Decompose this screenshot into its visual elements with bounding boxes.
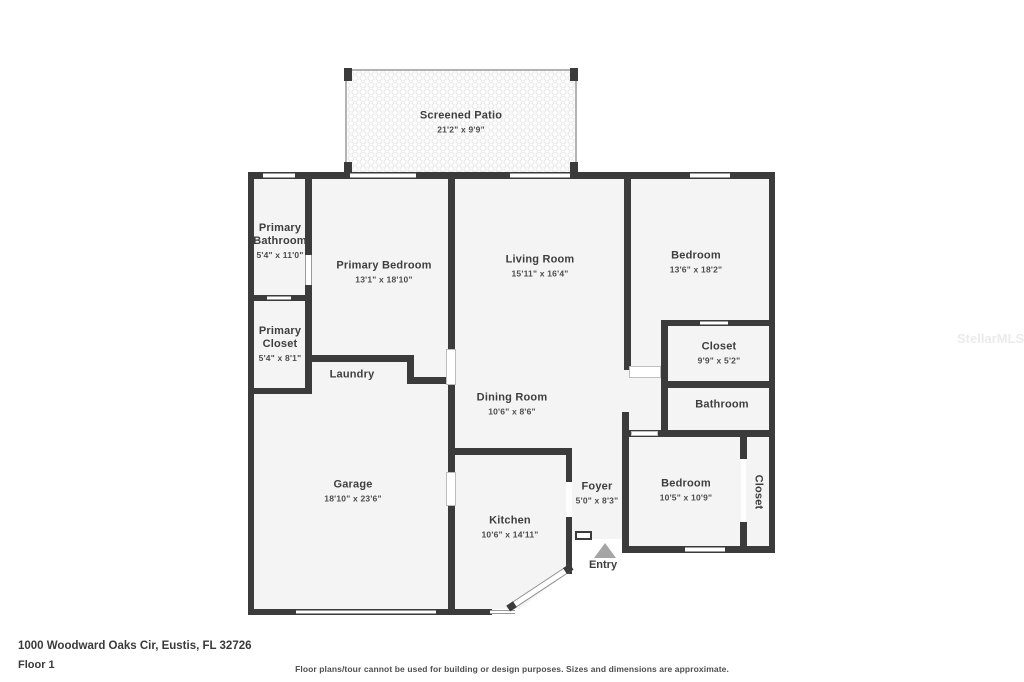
room-dims: 10'6" x 14'11" (482, 529, 539, 539)
patio-sliding-door (350, 173, 416, 178)
room-label-bedroom-lower: Bedroom 10'5" x 10'9" (660, 478, 713, 503)
entry-arrow-icon (594, 543, 616, 558)
room-dims: 18'10" x 23'6" (324, 493, 381, 503)
closet-opening (700, 321, 728, 325)
room-dims: 15'11" x 16'4" (506, 268, 575, 278)
garage-door (296, 610, 436, 614)
room-label-closet-lower: Closet (752, 475, 765, 510)
room-label-foyer: Foyer 5'0" x 8'3" (576, 481, 619, 506)
floor-plan-page: Entry Screened Patio 21'2" x 9'9" Primar… (0, 0, 1024, 682)
door-opening (631, 431, 658, 436)
window (263, 173, 295, 178)
room-dims: 13'6" x 18'2" (670, 264, 723, 274)
patio-column (570, 68, 578, 81)
room-name: Screened Patio (420, 110, 502, 123)
entry-label: Entry (589, 559, 617, 571)
room-label-primary-bedroom: Primary Bedroom 13'1" x 18'10" (336, 260, 431, 285)
room-label-screened-patio: Screened Patio 21'2" x 9'9" (420, 110, 502, 135)
wall-segment (740, 522, 747, 546)
room-label-laundry: Laundry (330, 369, 375, 382)
room-dims: 21'2" x 9'9" (420, 124, 502, 134)
door-opening (267, 296, 291, 300)
room-name: Laundry (330, 369, 375, 382)
wall-segment (661, 323, 668, 437)
wall-segment (248, 388, 312, 394)
room-name: Closet (698, 341, 741, 354)
wall-segment (624, 172, 631, 370)
wall-segment (622, 412, 629, 546)
closet-opening (741, 459, 746, 522)
wall-segment (448, 505, 455, 615)
room-name: Garage (324, 479, 381, 492)
window (685, 547, 725, 552)
room-label-garage: Garage 18'10" x 23'6" (324, 479, 381, 504)
window (690, 173, 730, 178)
room-name: Bedroom (660, 478, 713, 491)
room-label-living-room: Living Room 15'11" x 16'4" (506, 254, 575, 279)
entry-door-sill (575, 531, 592, 540)
floor-plan: Entry Screened Patio 21'2" x 9'9" Primar… (0, 0, 1024, 682)
watermark: StellarMLS (957, 331, 1024, 346)
wall-segment (448, 172, 455, 352)
room-dims: 5'0" x 8'3" (576, 495, 619, 505)
room-name: Dining Room (477, 392, 548, 405)
wall-segment (566, 448, 572, 482)
wall-segment (448, 384, 455, 473)
room-label-bathroom: Bathroom (695, 399, 749, 412)
room-dims: 13'1" x 18'10" (336, 274, 431, 284)
room-name: Kitchen (482, 515, 539, 528)
room-name: Bedroom (670, 250, 723, 263)
patio-sliding-door (510, 173, 570, 178)
door-opening (566, 482, 572, 517)
room-dims: 9'9" x 5'2" (698, 355, 741, 365)
room-label-primary-closet: Primary Closet 5'4" x 8'1" (251, 325, 309, 363)
room-label-closet-upper: Closet 9'9" x 5'2" (698, 341, 741, 366)
door-opening (629, 366, 661, 378)
room-label-dining-room: Dining Room 10'6" x 8'6" (477, 392, 548, 417)
wall-segment (740, 437, 747, 459)
room-name: Primary Bedroom (336, 260, 431, 273)
wall-segment (305, 355, 414, 362)
room-dims: 5'4" x 11'0" (245, 250, 315, 260)
room-dims: 5'4" x 8'1" (251, 353, 309, 363)
property-address: 1000 Woodward Oaks Cir, Eustis, FL 32726 (18, 640, 252, 652)
wall-segment (448, 448, 572, 455)
room-name: Living Room (506, 254, 575, 267)
wall-segment (661, 381, 775, 388)
room-label-primary-bathroom: Primary Bathroom 5'4" x 11'0" (245, 222, 315, 260)
room-name: Primary Bathroom (245, 222, 315, 248)
room-name: Foyer (576, 481, 619, 494)
wall-segment (769, 172, 775, 553)
room-label-kitchen: Kitchen 10'6" x 14'11" (482, 515, 539, 540)
room-name: Closet (752, 475, 765, 510)
door-opening (446, 472, 456, 506)
room-dims: 10'6" x 8'6" (477, 406, 548, 416)
room-dims: 10'5" x 10'9" (660, 492, 713, 502)
room-name: Primary Closet (251, 325, 309, 351)
room-name: Bathroom (695, 399, 749, 412)
patio-column (344, 68, 352, 81)
disclaimer-text: Floor plans/tour cannot be used for buil… (0, 664, 1024, 674)
door-opening (446, 349, 456, 385)
room-label-bedroom-upper: Bedroom 13'6" x 18'2" (670, 250, 723, 275)
